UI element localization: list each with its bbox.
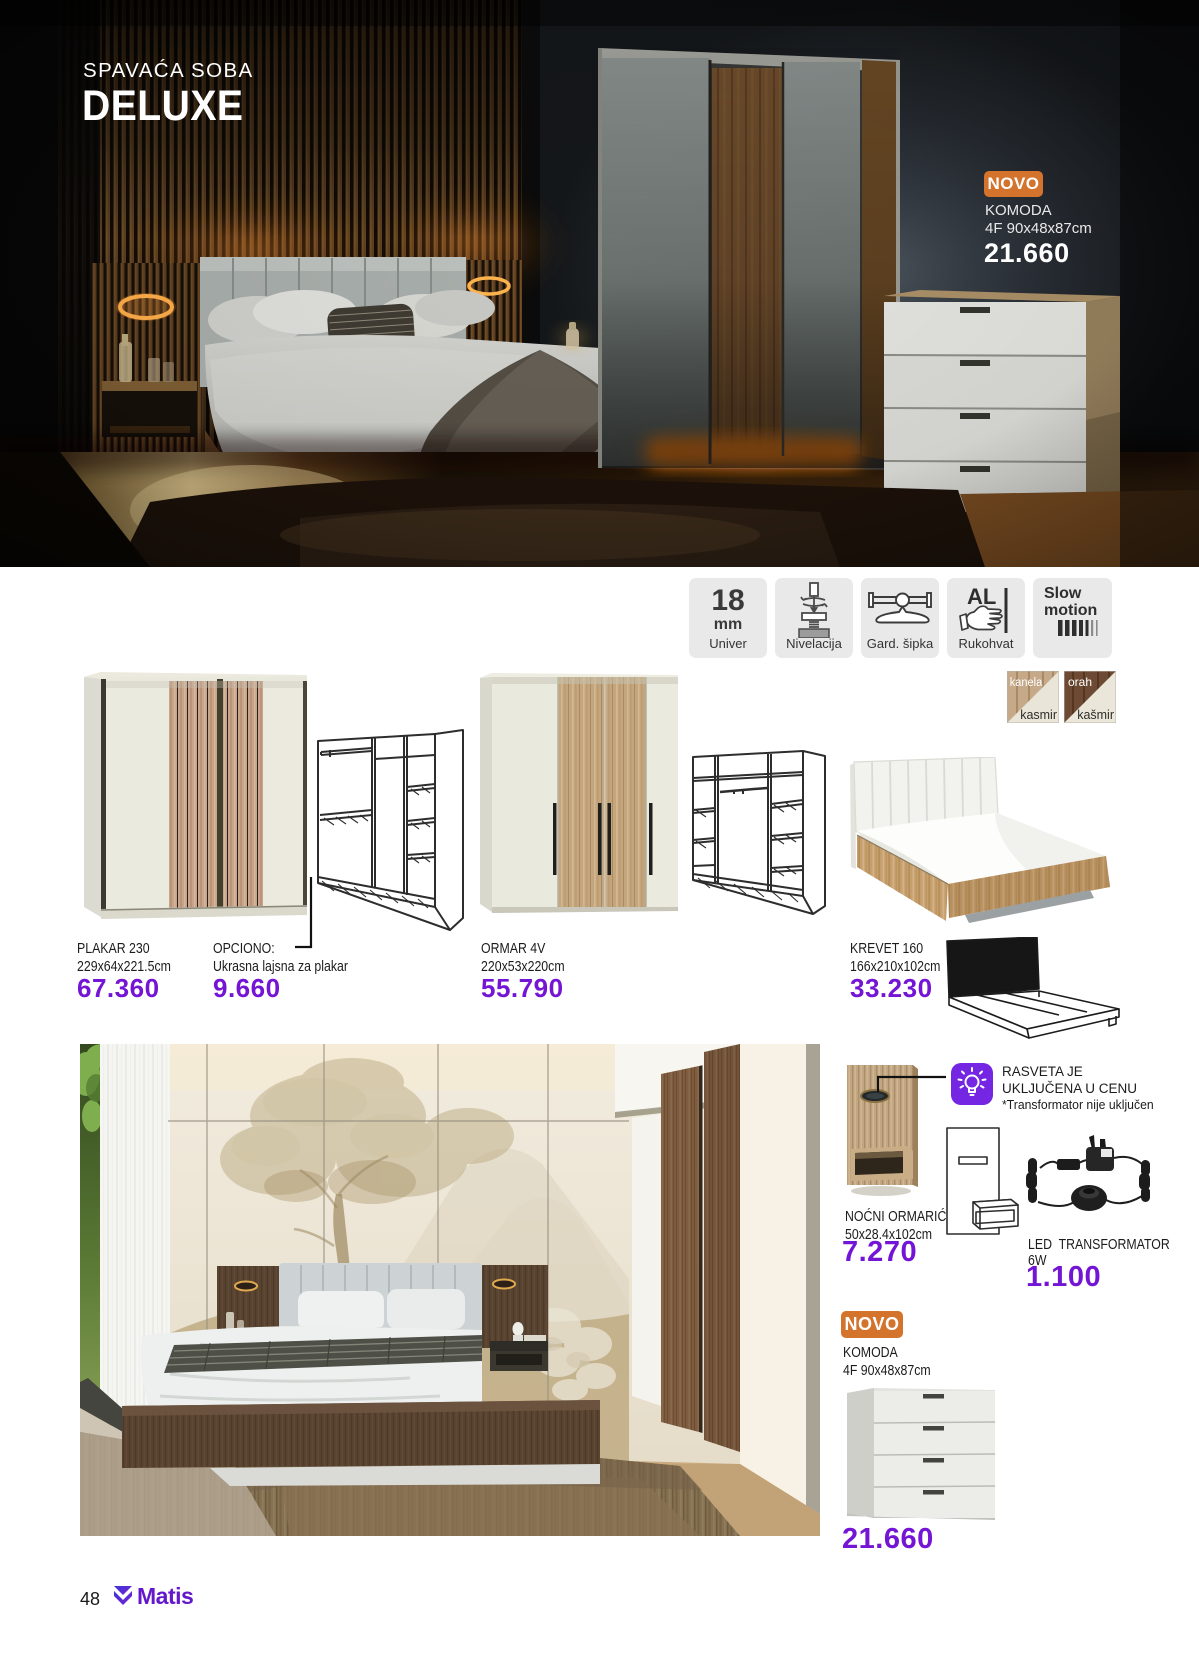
svg-text:kasmir: kasmir	[1020, 708, 1057, 722]
svg-text:AL: AL	[967, 584, 996, 609]
svg-text:orah: orah	[1068, 675, 1092, 689]
svg-text:kašmir: kašmir	[1077, 708, 1114, 722]
svg-text:kanela: kanela	[1010, 677, 1043, 689]
svg-text:Matis: Matis	[137, 1583, 193, 1609]
